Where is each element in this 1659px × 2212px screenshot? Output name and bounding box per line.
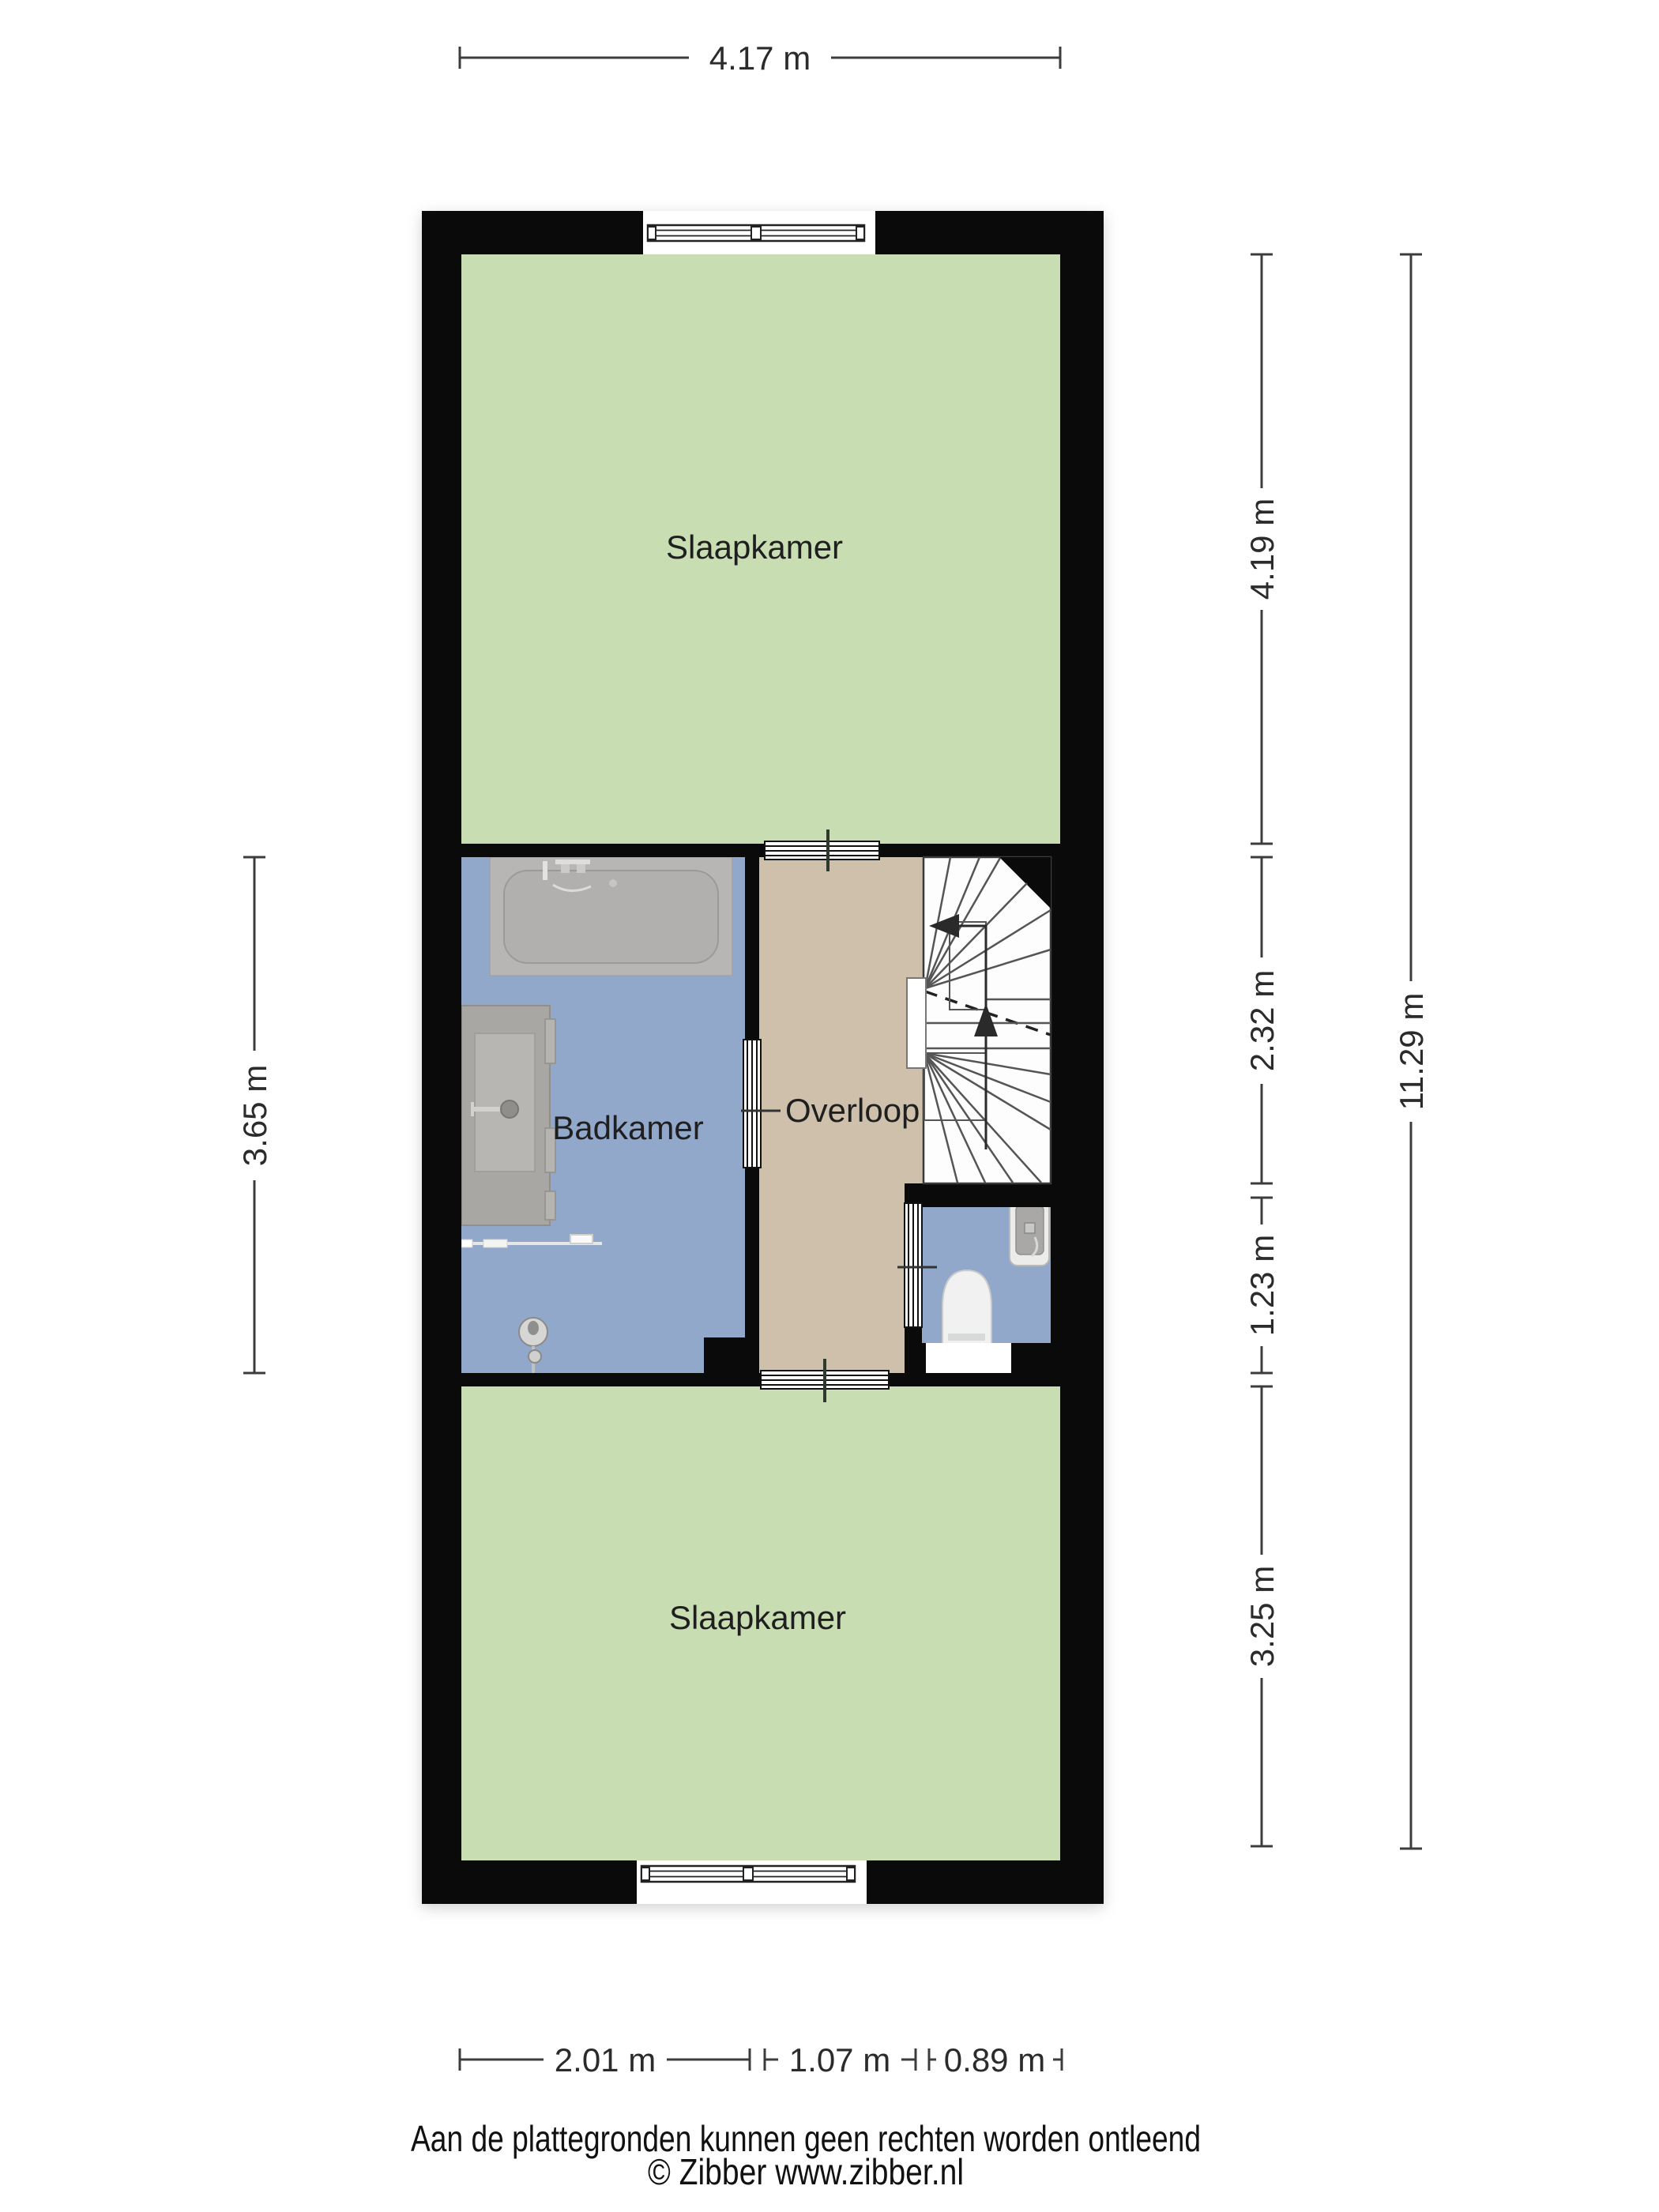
label-bedroom-top: Slaapkamer [666,529,843,566]
dim-bottom-right: 0.89 m [929,2038,1062,2081]
room-landing-lower [759,1183,905,1373]
dim-bottom-middle-text: 1.07 m [789,2041,890,2078]
wall-wc-bottom-left [905,1343,926,1373]
floorplan-canvas: Slaapkamer Badkamer Overloop Slaapkamer … [0,0,1659,2212]
wc-sink-fixture [1010,1198,1049,1266]
dim-right-top-text: 4.19 m [1243,498,1281,600]
door-bathroom-landing [743,1040,761,1168]
label-landing: Overloop [785,1092,920,1129]
wall-bathroom-landing-upper [745,857,759,1040]
footer-copyright: © Zibber www.zibber.nl [648,2151,964,2192]
wall-wc-bottom-right [1011,1343,1051,1373]
wall-stair-right-filler [1051,857,1060,1386]
label-bathroom: Badkamer [552,1109,703,1146]
toilet-fixture [942,1270,991,1345]
staircase [907,857,1051,1183]
dim-top-width-text: 4.17 m [709,39,811,77]
wall-left [422,211,461,1904]
wall-landing-bedroom-right [889,1373,1060,1386]
wall-wc-left-stub [905,1326,922,1343]
dim-bottom-right-text: 0.89 m [944,2041,1045,2078]
bathtub-fixture [490,857,732,976]
label-bedroom-bottom: Slaapkamer [669,1599,846,1636]
wc-niche [926,1343,1011,1373]
wall-bottom-left [422,1860,637,1904]
stair-newel-post [907,978,926,1068]
wall-right [1060,211,1104,1904]
dim-bottom-left-text: 2.01 m [555,2041,656,2078]
wall-landing-bedroom-left [461,1373,761,1386]
dim-left-middle-text: 3.65 m [236,1065,273,1166]
vanity-sink-fixture [461,1006,555,1225]
window-bottom [637,1860,867,1904]
dim-right-middle-text: 2.32 m [1243,970,1281,1071]
wall-bedroom-landing-left [461,844,765,857]
dim-right-lower-text: 1.23 m [1243,1235,1281,1336]
wall-bottom-right [867,1860,1104,1904]
window-top [643,211,875,254]
dim-bottom-middle: 1.07 m [765,2038,916,2081]
dim-right-bottom-text: 3.25 m [1243,1566,1281,1667]
floorplan: Slaapkamer Badkamer Overloop Slaapkamer [422,211,1104,1904]
wall-bedroom-landing-right [879,844,1060,857]
dim-right-total-text: 11.29 m [1393,993,1430,1111]
room-landing-upper [759,857,924,1183]
wall-bathroom-jog [704,1337,757,1373]
wall-stairs-wc [905,1183,1051,1207]
